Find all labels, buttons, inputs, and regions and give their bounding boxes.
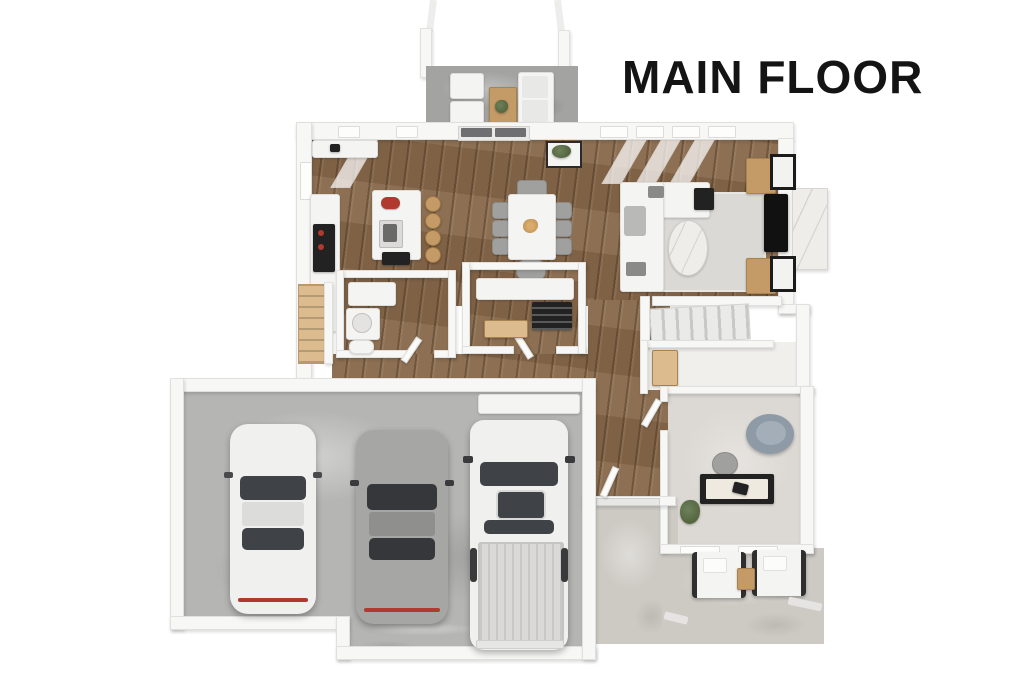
staircase: [649, 303, 751, 344]
patio-chair-pillow: [763, 556, 787, 571]
dining-chair: [554, 220, 572, 237]
island-base: [382, 252, 410, 265]
side-table: [694, 188, 714, 210]
garage-wall-left: [170, 378, 184, 630]
roof-edge-right: [554, 0, 565, 32]
window: [708, 126, 736, 138]
side-mirror: [565, 456, 575, 463]
rear-bumper: [476, 640, 564, 649]
oval-coffee-table: [668, 220, 708, 276]
window: [636, 126, 664, 138]
sofa-throw-blanket: [624, 206, 646, 236]
pantry-wall-top: [462, 262, 586, 270]
sofa-pillow: [648, 186, 664, 198]
dining-chair: [554, 202, 572, 219]
truck-bed: [478, 542, 564, 644]
window: [600, 126, 628, 138]
stair-rail-wall: [324, 282, 333, 364]
rear-window: [369, 538, 435, 560]
porch-armchair: [450, 73, 484, 99]
garage-wall-right: [582, 378, 596, 660]
garage-wall-top: [178, 378, 594, 392]
windshield: [240, 476, 306, 500]
red-kettle: [381, 197, 400, 209]
pantry-marble-counter: [476, 278, 574, 300]
side-mirror: [350, 480, 359, 486]
bar-stool: [425, 213, 441, 229]
fireplace-bump-out: [792, 188, 828, 270]
rear-cab-window: [484, 520, 554, 534]
office-wall-left: [660, 386, 668, 402]
taillights: [364, 608, 440, 612]
stair-wall-bottom: [640, 340, 774, 348]
bathroom-wall-left: [336, 270, 344, 358]
office-wall-left: [660, 430, 668, 552]
bar-stool: [425, 196, 441, 212]
desk-chair: [712, 452, 738, 476]
bathroom-wall-top: [336, 270, 456, 278]
sofa-pillow: [626, 262, 646, 276]
cab-sunroof: [496, 490, 546, 520]
wall-art: [770, 154, 796, 190]
window: [396, 126, 418, 138]
side-mirror: [224, 472, 233, 478]
pantry-bench: [484, 320, 528, 338]
exterior-wall-right-closet: [796, 304, 810, 394]
dining-chair: [554, 238, 572, 255]
kitchen-counter-top-wall: [312, 140, 378, 158]
taillights: [238, 598, 308, 602]
porch-sofa-cushion: [522, 100, 548, 122]
pantry-wall-right: [578, 262, 586, 354]
patio-chair-pillow: [703, 558, 727, 573]
cooktop-burner: [318, 230, 324, 236]
side-mirror: [313, 472, 322, 478]
wall-art: [770, 256, 796, 292]
closet-bench: [652, 350, 678, 386]
garage-storage-bench: [478, 394, 580, 414]
car-roof: [369, 512, 435, 536]
sink-basin: [383, 224, 397, 242]
white-pickup-truck: [470, 420, 568, 650]
wheel-arch: [470, 548, 477, 582]
wheel-arch: [561, 548, 568, 582]
side-mirror: [445, 480, 454, 486]
car-roof: [242, 502, 304, 526]
bar-stool: [425, 247, 441, 263]
window: [672, 126, 700, 138]
round-chair-cushion: [756, 421, 786, 445]
garage-wall-bottom-left: [170, 616, 348, 630]
coffee-maker: [330, 144, 340, 152]
front-door-panel: [495, 128, 526, 137]
page-title: MAIN FLOOR: [622, 54, 923, 100]
gray-sedan: [356, 430, 448, 624]
front-door-panel: [461, 128, 492, 137]
toilet: [349, 340, 374, 354]
back-door-glass: [596, 498, 660, 506]
office-wall-top: [660, 386, 814, 394]
cooktop-burner: [318, 244, 324, 250]
stair-wall-left: [640, 296, 650, 346]
cooktop: [313, 224, 335, 272]
white-sedan: [230, 424, 316, 614]
laundry-shelving: [532, 302, 572, 330]
basement-stairs: [298, 284, 326, 364]
bathroom-cabinet: [348, 282, 396, 306]
office-wall-right: [800, 386, 814, 554]
pantry-wall-left: [462, 262, 470, 354]
rear-window: [242, 528, 304, 550]
patio-side-table: [737, 568, 755, 590]
pantry-wall-bottom: [462, 346, 514, 354]
window: [338, 126, 360, 138]
windshield: [480, 462, 558, 486]
bathroom-wall-right: [448, 270, 456, 358]
tv: [764, 194, 788, 252]
bar-stool: [425, 230, 441, 246]
floor-plan-canvas: MAIN FLOOR: [0, 0, 1024, 683]
closet-wall-left: [640, 340, 648, 394]
side-mirror: [463, 456, 473, 463]
vanity-sink: [352, 313, 372, 333]
porch-sofa-cushion: [522, 76, 548, 98]
windshield: [367, 484, 437, 510]
